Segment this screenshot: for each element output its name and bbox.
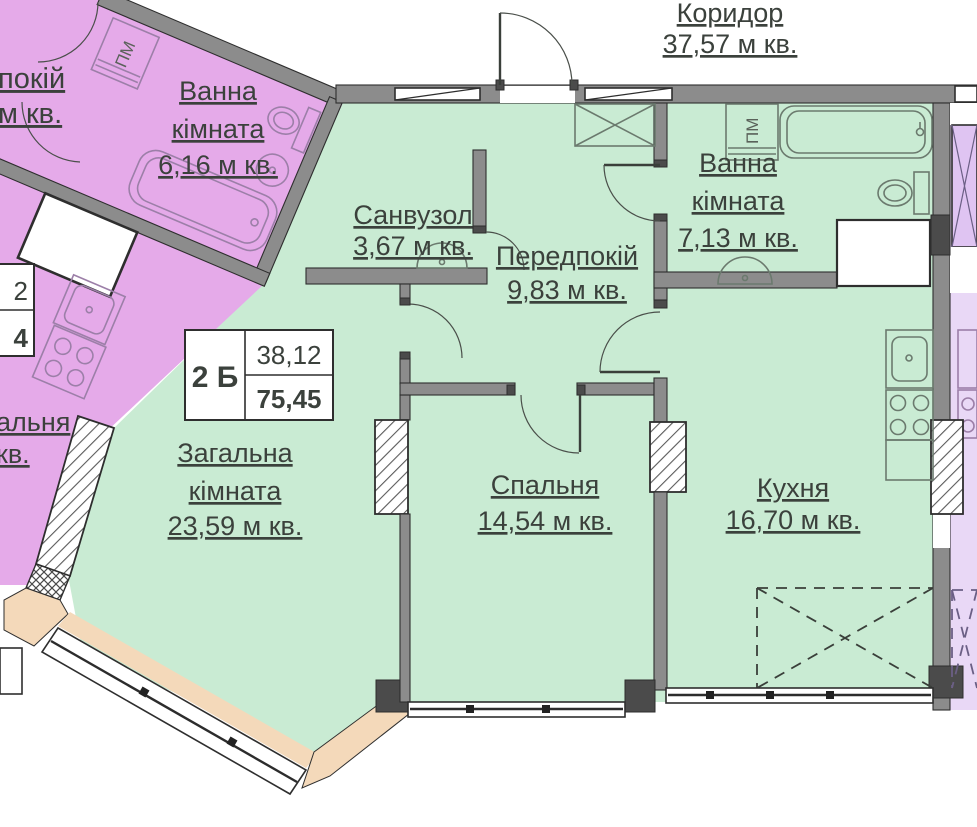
bath-name-2: кімната [692,186,786,216]
kitchen-area: 16,70 м кв. [726,505,861,535]
door-jamb-kitchen-1 [654,300,667,308]
floor-plan: ПМ [0,0,977,827]
hatched-column-kitchen [650,422,686,492]
duct-shaft-bath [837,220,930,286]
unit-value-top: 38,12 [256,340,321,370]
neighbor-bath-name-1: Ванна [179,76,258,106]
neighbor-bath-area: 6,16 м кв. [158,150,278,180]
neighbor-partial-bottom-2: кв. [0,439,30,469]
right-wall-window-gap [933,514,950,548]
door-jamb-bedroom-1 [507,385,515,395]
wall-gap-top-right [955,86,977,102]
door-jamb-living-2 [400,352,410,359]
bath-name-1: Ванна [699,148,778,178]
bath-area: 7,13 м кв. [678,223,798,253]
bedroom-name: Спальня [491,470,600,500]
sanvuzol-area: 3,67 м кв. [353,231,473,261]
neighbor-right-window-shaft [952,125,977,247]
living-name-1: Загальна [177,438,293,468]
unit-value-bottom: 75,45 [256,384,321,414]
neighbor-label-bottom-digit: 4 [14,323,29,353]
neighbor-label-top-digit: 2 [14,276,28,306]
door-jamb-bath-2 [654,214,667,221]
entrance-door-opening [500,86,575,103]
door-jamb-entrance-right [570,80,578,90]
unit-label-box: 2 Б 38,12 75,45 [185,330,333,420]
neighbor-partial-bottom-1: альня [0,407,70,437]
door-jamb-bedroom-2 [577,385,585,395]
window-left-edge [0,648,22,694]
column-bedroom-kitchen [625,680,655,712]
hall-area: 9,83 м кв. [507,275,627,305]
bedroom-area: 14,54 м кв. [478,506,613,536]
neighbor-partial-top-2: м кв. [0,98,62,130]
kitchen-name: Кухня [757,473,829,503]
hatched-column-living [375,420,408,514]
door-jamb-sanvuzol [473,226,486,233]
living-area: 23,59 м кв. [168,511,303,541]
hall-name: Передпокій [496,241,638,271]
neighbor-bath-name-2: кімната [172,114,266,144]
unit-code: 2 Б [192,361,239,394]
living-name-2: кімната [189,476,283,506]
column-right-1 [931,215,950,255]
neighbor-partial-top-1: покій [0,63,65,95]
sanvuzol-name: Санвузол [353,200,472,230]
floor-plan-page: ПМ [0,0,977,827]
corridor-area: 37,57 м кв. [663,29,798,59]
right-wall [933,103,950,710]
door-jamb-living-1 [400,298,410,305]
washer-label-main: ПМ [743,118,762,144]
column-right-bottom [929,666,963,698]
corridor-name: Коридор [677,0,784,28]
hatched-column-right [931,420,963,514]
neighbor-unit-label-box: 2 4 [0,264,34,356]
